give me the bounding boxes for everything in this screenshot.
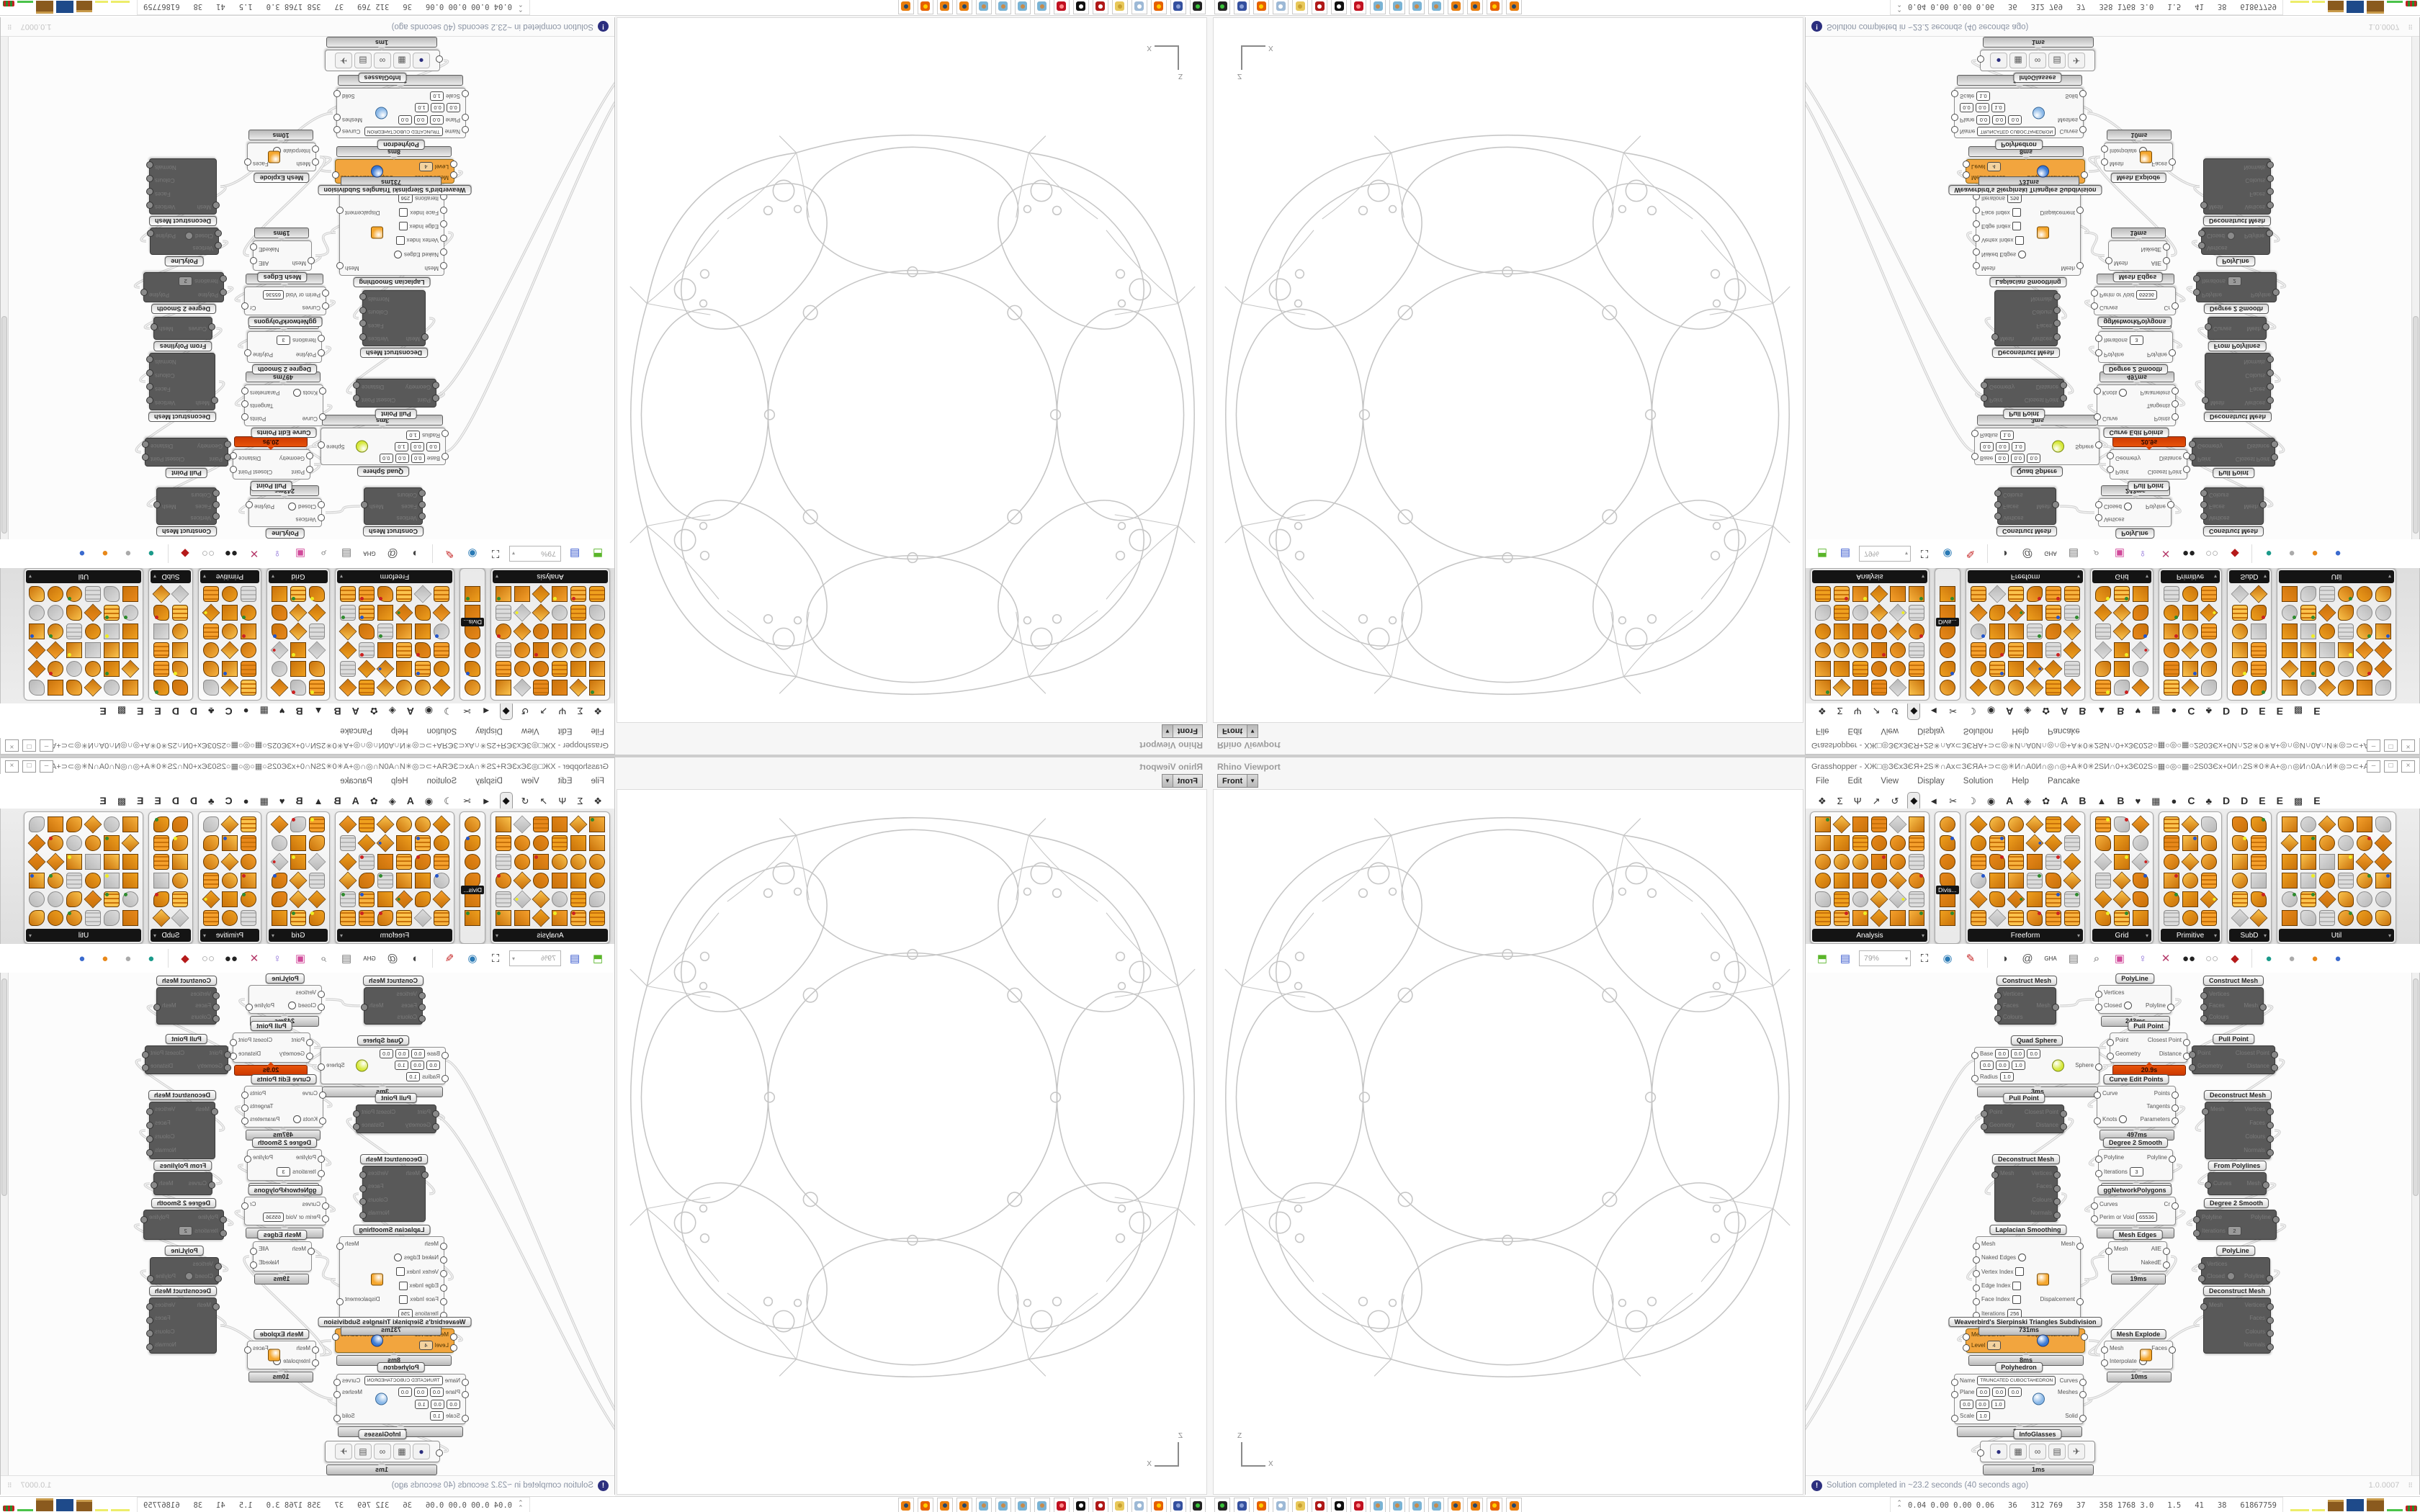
- input-pin[interactable]: [319, 387, 326, 395]
- output-pin[interactable]: [2267, 161, 2274, 168]
- component-icon[interactable]: [2281, 834, 2299, 852]
- gh-node-cm2[interactable]: Construct MeshVerticesFacesMeshColours: [156, 987, 217, 1025]
- input-pin[interactable]: [440, 1298, 447, 1305]
- value-chip[interactable]: 2: [2228, 276, 2241, 286]
- input-pin[interactable]: [2205, 1182, 2212, 1189]
- value-chip[interactable]: 0.0: [411, 1061, 424, 1070]
- component-icon[interactable]: [1852, 680, 1868, 696]
- input-pin[interactable]: [2101, 1346, 2108, 1354]
- component-icon[interactable]: [2282, 854, 2298, 870]
- component-icon[interactable]: [66, 680, 82, 696]
- component-icon[interactable]: [2251, 661, 2267, 677]
- bulb-icon[interactable]: ♀: [268, 544, 287, 563]
- gh-node-poly[interactable]: PolyhedronNameTRUNCATED CUBOCTAHEDRONCur…: [1954, 1374, 2084, 1424]
- component-icon[interactable]: [1852, 624, 1868, 639]
- component-icon[interactable]: [377, 679, 395, 697]
- component-icon[interactable]: [2375, 605, 2391, 621]
- component-icon[interactable]: [2232, 816, 2248, 832]
- component-icon[interactable]: [172, 624, 188, 639]
- moon-icon[interactable]: ◑: [1995, 544, 2014, 563]
- component-icon[interactable]: [1889, 891, 1907, 909]
- component-icon[interactable]: [377, 605, 393, 621]
- component-icon[interactable]: [2375, 910, 2391, 926]
- input-pin[interactable]: [318, 349, 325, 356]
- output-pin[interactable]: [2079, 114, 2087, 121]
- taskbar-app-paint[interactable]: [1389, 1498, 1405, 1512]
- taskbar-app-firefox[interactable]: [1487, 1498, 1502, 1512]
- gh-node-pp1[interactable]: Pull PointPointClosest PointGeometryDist…: [2110, 1032, 2187, 1063]
- taskbar-app-firefox[interactable]: [1253, 0, 1269, 14]
- component-icon[interactable]: [1815, 680, 1831, 696]
- value-chip[interactable]: 2: [179, 276, 192, 286]
- component-icon[interactable]: [309, 680, 325, 696]
- output-pin[interactable]: [2267, 1317, 2274, 1324]
- component-icon[interactable]: [104, 661, 120, 677]
- output-pin[interactable]: [2060, 1110, 2067, 1117]
- output-pin[interactable]: [241, 400, 248, 408]
- mag-icon[interactable]: ⌕: [2087, 544, 2106, 563]
- component-icon[interactable]: [496, 680, 511, 696]
- menu-item-display[interactable]: Display: [475, 726, 503, 735]
- input-pin[interactable]: [436, 1449, 443, 1457]
- component-tab-17[interactable]: ♥: [277, 703, 287, 719]
- rhino-viewport-canvas[interactable]: Z X: [1213, 789, 1803, 1495]
- gh-node-pp3[interactable]: Pull PointPointClosest PointGeometryDist…: [145, 1045, 228, 1074]
- component-tab-7[interactable]: ✂: [461, 793, 473, 809]
- component-icon[interactable]: [589, 854, 605, 870]
- tray-item[interactable]: [2387, 1, 2403, 3]
- component-icon[interactable]: [2113, 891, 2131, 909]
- taskbar-app-paint[interactable]: [1428, 1498, 1444, 1512]
- bulb-icon[interactable]: ♀: [2133, 544, 2152, 563]
- taskbar-app-blender[interactable]: [956, 1498, 972, 1512]
- output-pin[interactable]: [2169, 349, 2176, 356]
- component-icon[interactable]: [589, 816, 605, 832]
- input-pin[interactable]: [1971, 453, 1978, 460]
- component-icon[interactable]: [308, 642, 326, 660]
- input-pin[interactable]: [2189, 1064, 2196, 1071]
- output-pin[interactable]: [2272, 1216, 2280, 1223]
- tray-item[interactable]: [2328, 1, 2344, 12]
- component-icon[interactable]: [2164, 642, 2179, 658]
- taskbar-app-blender[interactable]: [937, 1498, 953, 1512]
- component-tab-2[interactable]: Ψ: [556, 703, 568, 719]
- component-icon[interactable]: [570, 679, 588, 697]
- component-icon[interactable]: [2251, 835, 2267, 851]
- component-icon[interactable]: [2357, 835, 2372, 851]
- component-icon[interactable]: [2201, 835, 2217, 851]
- component-icon[interactable]: [1871, 835, 1887, 851]
- component-icon[interactable]: [514, 891, 532, 909]
- pkg-icon[interactable]: ▣: [2110, 544, 2129, 563]
- input-pin[interactable]: [1994, 513, 2002, 520]
- dna-icon[interactable]: ✕: [245, 949, 264, 968]
- output-pin[interactable]: [2169, 1156, 2176, 1163]
- component-icon[interactable]: [66, 816, 82, 832]
- component-icon[interactable]: [396, 624, 412, 639]
- panel-label[interactable]: Util▾: [2279, 570, 2394, 583]
- component-icon[interactable]: [2201, 873, 2217, 888]
- component-icon[interactable]: [66, 835, 82, 851]
- input-pin[interactable]: [2094, 413, 2101, 420]
- component-icon[interactable]: [396, 586, 412, 602]
- input-pin[interactable]: [440, 262, 447, 269]
- component-icon[interactable]: [1871, 642, 1887, 658]
- component-icon[interactable]: [2045, 873, 2061, 888]
- component-tab-4[interactable]: ↺: [519, 703, 532, 719]
- output-pin[interactable]: [2163, 258, 2170, 265]
- component-icon[interactable]: [2250, 585, 2268, 603]
- input-pin[interactable]: [215, 243, 222, 250]
- component-icon[interactable]: [465, 680, 480, 696]
- at-icon[interactable]: @: [2018, 544, 2037, 563]
- infoglasses-icon[interactable]: ∞: [2029, 53, 2046, 68]
- output-pin[interactable]: [333, 1415, 341, 1422]
- component-icon[interactable]: [85, 624, 101, 639]
- maximize-button[interactable]: □: [22, 740, 36, 752]
- component-icon[interactable]: [2319, 910, 2335, 926]
- value-chip[interactable]: TRUNCATED CUBOCTAHEDRON: [1977, 1376, 2056, 1385]
- component-icon[interactable]: [415, 624, 431, 639]
- component-icon[interactable]: [222, 910, 238, 926]
- chevron-down-icon[interactable]: ▼: [1162, 725, 1173, 737]
- component-tab-10[interactable]: A: [405, 793, 416, 809]
- component-icon[interactable]: [221, 642, 239, 660]
- component-icon[interactable]: [203, 854, 219, 870]
- component-icon[interactable]: [2338, 854, 2354, 870]
- component-icon[interactable]: [377, 660, 395, 678]
- component-icon[interactable]: [415, 835, 431, 851]
- tray-item[interactable]: [56, 1, 73, 13]
- component-icon[interactable]: [48, 816, 63, 832]
- taskbar-app-firefox[interactable]: [918, 0, 933, 14]
- component-icon[interactable]: [2338, 835, 2354, 851]
- gh-node-pp3[interactable]: Pull PointPointClosest PointGeometryDist…: [145, 438, 228, 467]
- checkbox-pin[interactable]: [2012, 1282, 2021, 1290]
- value-chip[interactable]: 3: [277, 336, 290, 346]
- component-icon[interactable]: [153, 835, 169, 851]
- output-pin[interactable]: [2262, 1182, 2269, 1189]
- value-chip[interactable]: 0.0: [2027, 1049, 2040, 1058]
- gh-node-pl2[interactable]: PolyLineVerticesClosedPolyline: [150, 228, 219, 255]
- component-icon[interactable]: [2182, 910, 2198, 926]
- component-tab-26[interactable]: ▩: [115, 793, 128, 809]
- resize-grip[interactable]: ⠿: [6, 1482, 12, 1490]
- component-icon[interactable]: [290, 816, 306, 832]
- input-pin[interactable]: [1951, 1391, 1958, 1398]
- close-button[interactable]: ×: [5, 760, 19, 773]
- component-icon[interactable]: [1971, 910, 1986, 926]
- component-icon[interactable]: [2375, 680, 2391, 696]
- menu-item-help[interactable]: Help: [2012, 777, 2029, 786]
- component-icon[interactable]: [552, 586, 568, 602]
- component-icon[interactable]: [2182, 661, 2198, 677]
- component-icon[interactable]: [2282, 605, 2298, 621]
- component-icon[interactable]: [172, 816, 188, 832]
- output-pin[interactable]: [2267, 1303, 2274, 1310]
- input-pin[interactable]: [1973, 248, 1980, 256]
- component-icon[interactable]: [2026, 834, 2044, 852]
- component-icon[interactable]: [1909, 605, 1924, 621]
- component-icon[interactable]: [589, 642, 605, 658]
- component-icon[interactable]: [2182, 642, 2200, 660]
- component-icon[interactable]: [172, 642, 188, 658]
- component-icon[interactable]: [1870, 604, 1888, 622]
- component-icon[interactable]: [340, 910, 356, 926]
- taskbar-app-paint[interactable]: [1409, 0, 1425, 14]
- output-pin[interactable]: [2271, 454, 2278, 461]
- component-icon[interactable]: [1971, 854, 1986, 870]
- component-icon[interactable]: [570, 873, 586, 888]
- infoglasses-icon[interactable]: ▦: [393, 53, 411, 68]
- component-icon[interactable]: [2045, 680, 2061, 696]
- component-icon[interactable]: [465, 835, 480, 851]
- component-icon[interactable]: [290, 835, 306, 851]
- output-pin[interactable]: [2271, 1064, 2278, 1071]
- ball-white-icon[interactable]: ●: [2282, 544, 2301, 563]
- output-pin[interactable]: [2183, 467, 2190, 474]
- output-pin[interactable]: [361, 501, 368, 508]
- panel-label[interactable]: Grid▾: [2092, 929, 2151, 942]
- component-icon[interactable]: [1971, 642, 1986, 658]
- component-icon[interactable]: [1890, 835, 1906, 851]
- component-icon[interactable]: [2319, 873, 2335, 888]
- component-icon[interactable]: [122, 660, 140, 678]
- input-pin[interactable]: [432, 1123, 439, 1130]
- component-icon[interactable]: [358, 834, 376, 852]
- component-tab-8[interactable]: ☽: [1966, 703, 1978, 719]
- component-icon[interactable]: [28, 853, 46, 871]
- gh-node-pp2[interactable]: Pull PointPointClosest PointGeometryDist…: [1984, 379, 2064, 408]
- taskbar-app-checker[interactable]: [1073, 0, 1089, 14]
- component-icon[interactable]: [2319, 642, 2335, 658]
- component-icon[interactable]: [2319, 586, 2335, 602]
- input-pin[interactable]: [442, 1075, 449, 1082]
- gha-icon[interactable]: GHA: [360, 949, 379, 968]
- maximize-button[interactable]: □: [22, 760, 36, 773]
- gh-node-d2s2[interactable]: Degree 2 SmoothPolylinePolylineIteration…: [143, 1210, 224, 1240]
- gem-icon[interactable]: ◆: [2226, 544, 2244, 563]
- component-icon[interactable]: [153, 605, 169, 621]
- menu-item-pancake[interactable]: Pancake: [2048, 726, 2080, 735]
- input-pin[interactable]: [306, 453, 313, 460]
- component-icon[interactable]: [2114, 816, 2130, 832]
- component-icon[interactable]: [203, 816, 219, 832]
- input-pin[interactable]: [432, 382, 439, 389]
- component-icon[interactable]: [172, 680, 188, 696]
- input-pin[interactable]: [2105, 1248, 2112, 1255]
- component-tab-18[interactable]: ▦: [258, 703, 271, 719]
- value-chip[interactable]: 0.0: [1996, 443, 2009, 452]
- component-icon[interactable]: [2282, 910, 2298, 926]
- component-icon[interactable]: [2027, 873, 2043, 888]
- component-icon[interactable]: [2132, 679, 2150, 697]
- taskbar-app-sto[interactable]: [1093, 0, 1108, 14]
- output-pin[interactable]: [241, 413, 248, 420]
- component-icon[interactable]: [153, 585, 171, 603]
- component-tab-1[interactable]: Σ: [575, 793, 585, 809]
- input-pin[interactable]: [224, 454, 231, 461]
- toggle-pin[interactable]: [288, 1002, 296, 1009]
- input-pin[interactable]: [308, 258, 315, 265]
- value-chip[interactable]: 1.0: [1976, 1411, 1990, 1421]
- component-icon[interactable]: [2250, 909, 2268, 927]
- gh-node-dm3[interactable]: Deconstruct MeshMeshVerticesFacesColours…: [2203, 158, 2271, 215]
- panel-label[interactable]: SubD▾: [2229, 570, 2269, 583]
- component-tab-7[interactable]: ✂: [1947, 793, 1959, 809]
- value-chip[interactable]: 1.0: [395, 1061, 408, 1070]
- pkg-icon[interactable]: ▣: [291, 544, 310, 563]
- infoglasses-icon[interactable]: ∞: [2029, 1444, 2046, 1459]
- component-icon[interactable]: [1834, 661, 1850, 677]
- component-icon[interactable]: [2027, 891, 2043, 907]
- value-chip[interactable]: 0.0: [430, 1387, 444, 1397]
- value-chip[interactable]: 1.0: [2000, 431, 2014, 441]
- component-icon[interactable]: [2027, 586, 2043, 602]
- component-icon[interactable]: [570, 661, 586, 677]
- input-pin[interactable]: [318, 335, 325, 342]
- input-pin[interactable]: [2200, 513, 2208, 520]
- gh-node-ggn[interactable]: ggNetworkPolygonsCurvesCrPerim or Void65…: [2094, 287, 2176, 315]
- component-icon[interactable]: [1871, 873, 1887, 888]
- value-chip[interactable]: 0.0: [1995, 1049, 2009, 1058]
- component-icon[interactable]: [552, 891, 568, 907]
- output-pin[interactable]: [2169, 1346, 2176, 1354]
- component-icon[interactable]: [2200, 604, 2218, 622]
- gh-node-dm2[interactable]: Deconstruct MeshMeshVerticesFacesColours…: [2205, 1102, 2271, 1159]
- input-pin[interactable]: [1991, 333, 1999, 341]
- component-icon[interactable]: [533, 816, 549, 832]
- component-icon[interactable]: [2164, 661, 2179, 677]
- input-pin[interactable]: [220, 276, 227, 283]
- component-icon[interactable]: [1833, 816, 1851, 834]
- component-tab-13[interactable]: A: [350, 793, 362, 809]
- tray-item[interactable]: [3, 1506, 14, 1511]
- component-icon[interactable]: [2338, 661, 2354, 677]
- output-pin[interactable]: [146, 202, 153, 209]
- component-icon[interactable]: [28, 642, 46, 660]
- menu-item-display[interactable]: Display: [475, 777, 503, 786]
- component-icon[interactable]: [1889, 623, 1907, 641]
- component-tab-18[interactable]: ▦: [2149, 703, 2162, 719]
- dna-icon[interactable]: ✕: [2156, 949, 2175, 968]
- component-icon[interactable]: [2338, 910, 2354, 926]
- input-pin[interactable]: [212, 513, 220, 520]
- input-pin[interactable]: [462, 1379, 469, 1386]
- input-pin[interactable]: [2095, 1156, 2102, 1163]
- checkbox-pin[interactable]: [2012, 1295, 2021, 1304]
- component-icon[interactable]: [396, 661, 412, 677]
- component-tab-22[interactable]: D: [188, 703, 200, 719]
- toggle-pin[interactable]: [394, 1254, 402, 1261]
- component-icon[interactable]: [415, 891, 431, 907]
- output-pin[interactable]: [153, 1004, 161, 1011]
- maximize-button[interactable]: □: [2384, 760, 2398, 773]
- component-icon[interactable]: [222, 624, 238, 639]
- taskbar-app-sto[interactable]: [1312, 1498, 1327, 1512]
- component-icon[interactable]: [2113, 623, 2131, 641]
- component-icon[interactable]: [2231, 585, 2249, 603]
- panel-label[interactable]: Analysis▾: [493, 570, 608, 583]
- component-icon[interactable]: [415, 605, 431, 621]
- component-icon[interactable]: [2232, 605, 2248, 621]
- pkg-icon[interactable]: ▣: [291, 949, 310, 968]
- component-tab-0[interactable]: ❖: [1816, 703, 1829, 719]
- gh-node-cep[interactable]: Curve Edit PointsCurvePointsTangentsKnot…: [2097, 384, 2176, 426]
- component-tab-27[interactable]: E: [2311, 793, 2322, 809]
- component-icon[interactable]: [2008, 680, 2024, 696]
- component-icon[interactable]: [1909, 661, 1924, 677]
- component-icon[interactable]: [172, 835, 188, 851]
- gh-node-dm1[interactable]: Deconstruct MeshMeshVerticesFacesColours…: [362, 1166, 426, 1222]
- gh-node-me[interactable]: Mesh EdgesMeshAllENakedE: [253, 1241, 312, 1272]
- gh-node-d2s1[interactable]: Degree 2 SmoothPolylinePolylineIteration…: [2098, 331, 2173, 363]
- taskbar-app-sto[interactable]: [1312, 0, 1327, 14]
- chevron-down-icon[interactable]: ▼: [1247, 775, 1258, 787]
- gh-node-pl1[interactable]: PolyLineVerticesClosedPolyline: [2098, 985, 2172, 1014]
- component-icon[interactable]: [415, 680, 431, 696]
- output-pin[interactable]: [2172, 400, 2179, 408]
- output-pin[interactable]: [2267, 1135, 2274, 1143]
- component-icon[interactable]: [2300, 873, 2316, 888]
- output-pin[interactable]: [2262, 323, 2269, 330]
- input-pin[interactable]: [2200, 992, 2208, 999]
- component-icon[interactable]: [1989, 909, 2007, 927]
- input-pin[interactable]: [1994, 1015, 2002, 1022]
- component-icon[interactable]: [2319, 835, 2335, 851]
- output-pin[interactable]: [2053, 307, 2061, 314]
- gh-node-me[interactable]: Mesh EdgesMeshAllENakedE: [253, 240, 312, 271]
- input-pin[interactable]: [2198, 1263, 2205, 1270]
- component-icon[interactable]: [570, 642, 586, 658]
- component-icon[interactable]: [271, 642, 289, 660]
- component-tab-20[interactable]: C: [2185, 703, 2197, 719]
- component-icon[interactable]: [222, 873, 238, 888]
- value-chip[interactable]: 4: [419, 162, 433, 171]
- component-icon[interactable]: [532, 604, 550, 622]
- menu-item-file[interactable]: File: [1816, 726, 1829, 735]
- taskbar-app-checker[interactable]: [1331, 0, 1347, 14]
- output-pin[interactable]: [336, 1243, 344, 1250]
- menu-item-pancake[interactable]: Pancake: [340, 726, 372, 735]
- output-pin[interactable]: [2172, 1117, 2179, 1125]
- output-pin[interactable]: [140, 1216, 148, 1223]
- input-pin[interactable]: [1994, 501, 2002, 508]
- output-pin[interactable]: [353, 395, 360, 402]
- component-icon[interactable]: [1909, 680, 1924, 696]
- component-icon[interactable]: [308, 853, 326, 871]
- component-icon[interactable]: [2300, 642, 2316, 658]
- component-icon[interactable]: [339, 816, 357, 834]
- input-pin[interactable]: [211, 1108, 218, 1115]
- input-pin[interactable]: [2094, 387, 2101, 395]
- input-pin[interactable]: [312, 145, 319, 153]
- component-icon[interactable]: [203, 661, 219, 677]
- value-chip[interactable]: 0.0: [2011, 454, 2025, 464]
- component-icon[interactable]: [309, 910, 325, 926]
- taskbar-app-floppy[interactable]: [1170, 0, 1186, 14]
- value-chip[interactable]: 0.0: [426, 443, 440, 452]
- component-icon[interactable]: [2338, 873, 2354, 888]
- component-icon[interactable]: [84, 679, 102, 697]
- component-icon[interactable]: [1940, 835, 1955, 851]
- component-tab-5[interactable]: ◆: [500, 792, 513, 809]
- component-icon[interactable]: [2282, 680, 2298, 696]
- value-chip[interactable]: 0.0: [2011, 1049, 2025, 1058]
- component-icon[interactable]: [1989, 873, 2005, 888]
- zoom-level-dropdown[interactable]: 79%: [509, 950, 561, 966]
- output-pin[interactable]: [2053, 333, 2061, 341]
